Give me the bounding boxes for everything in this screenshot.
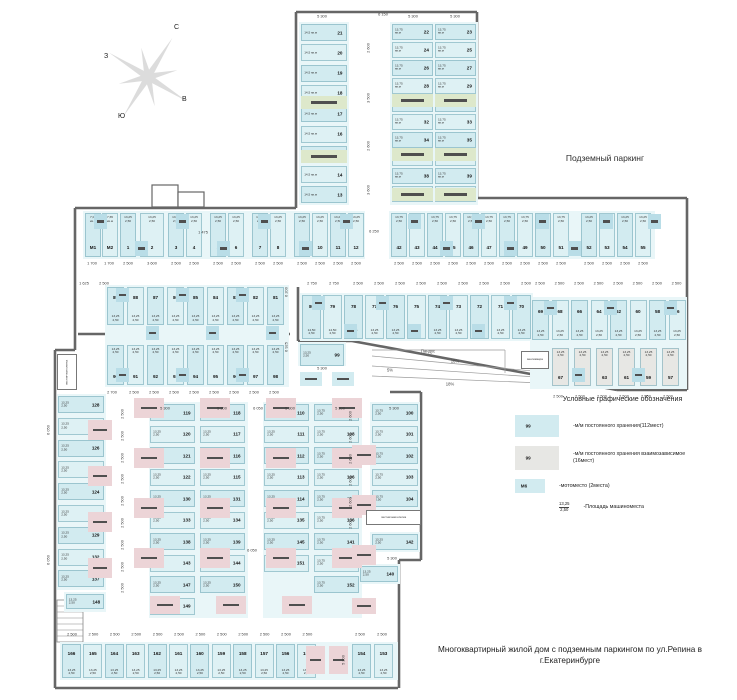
stall-number: 124	[92, 489, 100, 494]
parking-stall: 2213,75кв.м	[392, 24, 433, 40]
stall-area-label: 13,752,50	[375, 452, 383, 459]
stall-area-line: 2,50	[395, 220, 403, 223]
stall-area-label: 13,752,50	[521, 216, 529, 223]
legend-item-text: -м/м постоянного хранения(112мест)	[573, 423, 703, 430]
column-marker	[306, 646, 325, 674]
column-marker-bar	[141, 557, 158, 560]
stall-area-label: 14,5 кв.м	[304, 51, 317, 54]
dimension-label: 2 500	[638, 261, 648, 266]
parking-stall: 2014,5 кв.м	[301, 44, 347, 61]
legend-item-text: -м/м постоянного хранения взаимозависимо…	[573, 451, 703, 464]
parking-stall: 2813,75кв.м	[392, 78, 433, 94]
stall-area-label: 13,252,50	[192, 348, 200, 355]
dimension-label: 2 500	[209, 390, 219, 395]
stall-area-line: 2,50	[579, 354, 587, 357]
stall-area-label: 13,252,50	[61, 554, 69, 561]
stall-area-line: 2,50	[272, 319, 280, 322]
stall-number: 12	[353, 245, 358, 250]
stall-area-label: 13,252,50	[203, 431, 211, 438]
stall-number: 138	[183, 539, 191, 544]
stall-number: 17	[337, 111, 342, 116]
column-marker-bar	[539, 220, 546, 223]
column-marker-bar	[357, 554, 370, 557]
stall-area-line: 2,50	[239, 672, 247, 675]
dimension-label: 2 500	[89, 632, 99, 637]
stall-area-line: 2,50	[645, 354, 653, 357]
parking-stall: 3313,75кв.м	[435, 114, 476, 130]
dimension-label: 5 300	[387, 556, 397, 561]
stall-area-label: 13,252,50	[639, 216, 647, 223]
dimension-label: 2 500	[171, 261, 181, 266]
dimension-label: 2 600	[366, 43, 371, 53]
stall-number: 97	[253, 374, 258, 379]
parking-stall: 11513,252,50	[200, 469, 245, 486]
stall-area-line: 2,50	[212, 351, 220, 354]
column-marker	[134, 548, 164, 568]
stall-area-label: 13,252,50	[61, 466, 69, 473]
stall-number: 135	[297, 518, 305, 523]
stall-area-label: 13,252,50	[579, 351, 587, 358]
stall-number: 64	[596, 309, 601, 314]
stall-area-line: 2,50	[61, 492, 69, 495]
dimension-label: 2 500	[67, 632, 77, 637]
stall-number: 120	[183, 432, 191, 437]
parking-stall: 8413,252,50	[207, 287, 224, 325]
legend-swatch-code: 99	[526, 424, 531, 429]
stall-number: 118	[233, 410, 240, 415]
parking-stall: 15813,252,50	[233, 644, 252, 678]
parking-stall: 15913,252,50	[212, 644, 231, 678]
stall-area-label: 13,252,50	[203, 474, 211, 481]
stall-area-line: 2,50	[192, 351, 200, 354]
stall-area-line: 2,50	[153, 542, 161, 545]
stall-area-label: 13,252,50	[434, 329, 442, 336]
stall-area-label: 14,5 кв.м	[304, 92, 317, 95]
stall-number: 91	[133, 374, 138, 379]
stall-number: 115	[233, 475, 240, 480]
stall-number: 44	[432, 245, 437, 250]
stall-area-line: 2,50	[316, 220, 324, 223]
dimension-label: 2 500	[355, 632, 365, 637]
column-marker-bar	[141, 507, 158, 510]
stall-area-line: 2,50	[485, 220, 493, 223]
column-marker	[146, 326, 159, 340]
dimension-label: 2 500	[374, 281, 384, 286]
dimension-label: 2 500	[196, 632, 206, 637]
stall-number: 60	[635, 309, 640, 314]
dimension-label: 2 500	[99, 281, 109, 286]
column-marker	[88, 466, 112, 486]
stall-area-label: 13,252,50	[124, 216, 132, 223]
stall-area-line: 2,50	[153, 477, 161, 480]
stall-area-label: 14,5 кв.м	[304, 193, 317, 196]
column-marker	[236, 368, 249, 382]
dimension-label: 2 500	[149, 390, 159, 395]
dimension-label: 2 500	[535, 281, 545, 286]
column-marker-bar	[571, 247, 578, 250]
stall-number: 63	[602, 375, 607, 380]
stall-area-line: 2,50	[89, 672, 97, 675]
stall-area-label: 13,252,50	[61, 423, 69, 430]
stall-area-label: 7,65кв.м	[107, 216, 113, 223]
column-marker-bar	[401, 193, 424, 196]
stall-area-label: 13,252,50	[196, 669, 204, 676]
stall-area-line: 2,50	[132, 351, 140, 354]
parking-stall: 2913,75кв.м	[435, 78, 476, 94]
stall-number: 113	[297, 475, 304, 480]
stall-area-line: 2,50	[449, 220, 457, 223]
stall-area-label: 13,252,50	[601, 351, 609, 358]
column-marker	[572, 368, 585, 382]
stall-number: 59	[646, 375, 651, 380]
column-marker-bar	[667, 307, 674, 310]
stall-area-line: 2,50	[252, 319, 260, 322]
dimension-label: 2 500	[553, 394, 563, 399]
column-marker	[352, 545, 376, 565]
dimension-label: 2 500	[213, 261, 223, 266]
parking-stall: 7914,502,50	[323, 295, 342, 339]
stall-area-label: 13,752,50	[431, 216, 439, 223]
legend-swatch-code: 99	[526, 456, 531, 461]
stall-area-label: 13,752,50	[317, 538, 325, 545]
dimension-label: 2 500	[412, 261, 422, 266]
parking-stall: 6013,252,50	[630, 300, 647, 340]
dimension-label: 2 500	[120, 518, 125, 528]
stall-number: 34	[424, 138, 429, 143]
stall-area-line: 2,50	[623, 354, 631, 357]
stall-area-label: 14,5 кв.м	[304, 31, 317, 34]
column-marker-bar	[302, 247, 309, 250]
column-marker	[504, 296, 517, 310]
stall-area-line: 2,50	[557, 220, 565, 223]
parking-stall: 613,252,50	[228, 213, 244, 257]
stall-area-label: 13,252,50	[232, 315, 240, 322]
stall-area-label: 13,252,50	[595, 330, 603, 337]
stall-area-line: 2,50	[639, 220, 647, 223]
dimension-label: 2 500	[120, 431, 125, 441]
stall-area-label: 13,75кв.м	[438, 47, 446, 54]
stall-area-line: 2,50	[153, 585, 161, 588]
dimension-label: 3 600	[147, 261, 157, 266]
column-marker-bar	[315, 302, 322, 305]
parking-stall: 5113,752,50	[553, 213, 569, 257]
column-marker-bar	[273, 457, 290, 460]
dimension-label: 2 500	[521, 281, 531, 286]
parking-stall: 9513,252,50	[207, 345, 224, 385]
stall-area-line: 14,5 кв.м	[304, 112, 317, 115]
dimension-label: 2 500	[123, 261, 133, 266]
column-marker	[408, 214, 421, 229]
column-marker-bar	[141, 407, 158, 410]
stall-area-line: 2,50	[190, 220, 198, 223]
dimension-label: 5 300	[408, 14, 418, 19]
stall-area-line: 2,50	[196, 672, 204, 675]
stall-area-line: 2,50	[317, 413, 325, 416]
column-marker	[206, 326, 219, 340]
stall-area-label: 13,252,50	[272, 348, 280, 355]
column-marker	[266, 498, 296, 518]
stall-area-line: 2,50	[521, 220, 529, 223]
stall-area-label: 13,252,50	[153, 669, 161, 676]
stall-area-label: 13,252,50	[190, 216, 198, 223]
column-marker	[116, 368, 129, 382]
parking-stall: 15213,752,50	[314, 576, 359, 593]
stall-area-line: кв.м	[395, 86, 403, 89]
stall-number: 87	[153, 295, 158, 300]
stall-area-label: 13,252,50	[352, 216, 360, 223]
stall-number: 153	[380, 651, 388, 656]
stall-area-label: 13,252,50	[557, 351, 565, 358]
stall-number: 157	[260, 651, 268, 656]
stall-area-line: кв.м	[438, 140, 446, 143]
stall-area-line: 2,50	[203, 585, 211, 588]
stall-number: 85	[193, 295, 198, 300]
legend-item: 99-м/м постоянного хранения(112мест)	[515, 415, 730, 437]
stall-area-line: 2,50	[69, 602, 77, 605]
stall-area-line: 2,50	[68, 672, 76, 675]
column-marker-bar	[357, 454, 370, 457]
dimension-label: 2 500	[597, 394, 607, 399]
stall-area-line: 2,50	[214, 220, 222, 223]
column-marker	[435, 148, 476, 161]
parking-stall: 3413,75кв.м	[392, 132, 433, 148]
stall-area-line: 2,50	[153, 520, 161, 523]
stall-number: 11	[336, 245, 341, 250]
dimension-label: 2 500	[120, 584, 125, 594]
stall-area-line: 2,50	[380, 672, 388, 675]
stall-number: 16	[337, 132, 342, 137]
stall-number: 163	[132, 651, 140, 656]
column-marker	[200, 498, 230, 518]
compass-star-arm	[109, 53, 150, 80]
stall-number: 128	[92, 402, 100, 407]
stall-area-line: 2,50	[61, 448, 69, 451]
stall-number: 51	[558, 245, 563, 250]
parking-stall: 6613,252,50	[571, 300, 588, 340]
stall-number: 32	[424, 120, 429, 125]
column-marker-bar	[635, 374, 642, 377]
column-marker	[435, 188, 476, 201]
column-marker-bar	[443, 247, 450, 250]
stall-area-label: 13,252,50	[61, 401, 69, 408]
dimension-label: 2 500	[260, 632, 270, 637]
stall-area-label: 14,502,50	[308, 329, 316, 336]
dimension-label: 5 300	[450, 14, 460, 19]
stall-area-label: 13,252,50	[152, 315, 160, 322]
stall-number: 43	[414, 245, 419, 250]
stall-area-line: 2,50	[615, 334, 623, 337]
parking-stall: 2114,5 кв.м	[301, 24, 347, 41]
stall-area-line: 2,50	[152, 319, 160, 322]
stall-area-line: 2,50	[172, 351, 180, 354]
stall-area-line: 2,50	[317, 499, 325, 502]
stall-number: 7	[259, 245, 262, 250]
compass-letter-n: С	[174, 24, 179, 31]
stall-area-line: 2,50	[267, 477, 275, 480]
stall-number: 21	[337, 30, 342, 35]
parking-stall: 16013,252,50	[190, 644, 209, 678]
stall-number: 84	[213, 295, 218, 300]
stall-number: 121	[183, 453, 191, 458]
stall-area-label: 13,752,50	[557, 216, 565, 223]
stall-area-label: 13,252,50	[232, 216, 240, 223]
stall-area-label: 13,75кв.м	[395, 137, 403, 144]
column-marker-bar	[575, 374, 582, 377]
stall-number: 1	[127, 245, 130, 250]
dimension-label: 2 500	[416, 281, 426, 286]
stall-number: 134	[233, 518, 241, 523]
column-marker	[536, 214, 549, 229]
stall-area-label: 13,75кв.м	[438, 83, 446, 90]
column-marker	[88, 558, 112, 578]
stall-number: 140	[386, 572, 394, 577]
stall-area-line: 2,50	[172, 319, 180, 322]
stall-area-line: 2,50	[267, 542, 275, 545]
dimension-label: 5 300	[317, 366, 327, 371]
parking-stall: 12813,252,50	[58, 396, 104, 413]
dimension-label: 5 300	[389, 406, 399, 411]
stall-area-label: 13,752,50	[317, 517, 325, 524]
stall-number: 147	[183, 582, 191, 587]
parking-stall: 15013,252,50	[200, 576, 245, 593]
parking-stall: 12213,252,50	[150, 469, 195, 486]
stall-area-label: 14,5 кв.м	[304, 132, 317, 135]
shaft-box	[152, 185, 178, 207]
dimension-label: 2 500	[448, 261, 458, 266]
stall-area-line: 2,50	[61, 405, 69, 408]
column-marker-bar	[507, 302, 514, 305]
stall-area-line: кв.м	[438, 68, 446, 71]
stall-number: 76	[393, 304, 398, 309]
dimension-label: 2 500	[584, 261, 594, 266]
parking-stall: 2713,75кв.м	[435, 60, 476, 76]
legend-swatch-code: М6	[521, 484, 527, 489]
stall-area-line: 2,50	[267, 434, 275, 437]
stall-number: 28	[424, 84, 429, 89]
column-marker	[266, 326, 279, 340]
stall-number: 88	[133, 295, 138, 300]
stall-number: 82	[253, 295, 258, 300]
column-marker-bar	[239, 294, 246, 297]
dimension-label: 1 475	[198, 230, 208, 235]
stall-number: 68	[557, 309, 562, 314]
stall-number: 13	[337, 192, 342, 197]
parking-stall: 1614,5 кв.м	[301, 126, 347, 143]
dimension-label: 2 500	[131, 632, 141, 637]
column-marker	[266, 548, 296, 568]
dimension-label: 2 500	[120, 562, 125, 572]
stall-area-label: 14,502,50	[329, 329, 337, 336]
compass-letter-w: З	[104, 53, 108, 60]
dimension-label: 2 500	[351, 261, 361, 266]
stall-area-label: 13,752,50	[375, 431, 383, 438]
stall-area-label: 13,252,50	[298, 216, 306, 223]
floor-plan-canvas: Подземный паркинг Условные графические о…	[0, 0, 737, 700]
stall-area-line: 2,50	[232, 220, 240, 223]
stall-number: 46	[468, 245, 473, 250]
parking-stall: 3913,75кв.м	[435, 168, 476, 184]
stall-area-line: 2,50	[61, 557, 69, 560]
parking-stall: 10413,752,50	[372, 490, 418, 507]
parking-stall: 3813,75кв.м	[392, 168, 433, 184]
compass-star-arm	[124, 75, 151, 116]
column-marker-bar	[138, 247, 145, 250]
parking-stall: 16613,252,50	[62, 644, 81, 678]
parking-stall: 16413,252,50	[105, 644, 124, 678]
column-marker-bar	[603, 220, 610, 223]
dimension-label: 2 500	[520, 261, 530, 266]
parking-stall: 9913,252,50	[300, 344, 344, 366]
parking-stall: 2313,75кв.м	[435, 24, 476, 40]
column-marker	[88, 512, 112, 532]
parking-stall: 9113,252,50	[127, 345, 144, 385]
parking-stall: 5713,252,50	[662, 348, 679, 386]
stall-area-label: 13,75кв.м	[395, 119, 403, 126]
stall-area-label: 13,252,50	[392, 329, 400, 336]
parking-stall: 16213,252,50	[148, 644, 167, 678]
stall-number: 131	[233, 496, 241, 501]
column-marker	[392, 148, 433, 161]
stall-number: 112	[297, 453, 304, 458]
stall-area-line: 2,50	[272, 351, 280, 354]
column-marker-bar	[119, 294, 126, 297]
stall-area-line: кв.м	[438, 32, 446, 35]
stall-area-label: 13,75кв.м	[395, 65, 403, 72]
column-marker	[340, 214, 353, 229]
dimension-label: 2 500	[120, 496, 125, 506]
stall-area-label: 13,752,50	[317, 474, 325, 481]
column-marker-bar	[379, 302, 386, 305]
stall-area-label: 13,252,50	[212, 348, 220, 355]
stall-number: 129	[92, 533, 100, 538]
column-marker-bar	[305, 378, 317, 381]
stall-area-label: 13,252,50	[537, 330, 545, 337]
stall-number: 79	[330, 304, 335, 309]
dimension-label: 2 500	[437, 281, 447, 286]
compass-star-arm	[145, 76, 155, 106]
stall-area-line: 2,50	[556, 334, 564, 337]
stall-area-line: кв.м	[395, 122, 403, 125]
stall-area-label: 14,5 кв.м	[304, 112, 317, 115]
stall-number: 143	[183, 561, 191, 566]
stall-area-line: кв.м	[107, 220, 113, 223]
compass-star-arm	[119, 74, 149, 84]
parking-stall: 10313,752,50	[372, 469, 418, 486]
legend-item: 13,252,50-Площадь машиноместа	[515, 502, 730, 512]
stall-area-line: кв.м	[395, 32, 403, 35]
stall-area-label: 13,252,50	[667, 351, 675, 358]
dimension-label: 6 150	[378, 12, 388, 17]
parking-stall: 11713,252,50	[200, 426, 245, 443]
column-marker	[408, 324, 421, 338]
stall-number: 102	[406, 453, 414, 458]
parking-stall: 16313,252,50	[126, 644, 145, 678]
dimension-label: 5 300	[217, 406, 227, 411]
stall-area-line: 2,50	[212, 319, 220, 322]
stall-area-label: 13,75кв.м	[438, 29, 446, 36]
dimension-label: 2 500	[575, 394, 585, 399]
stall-number: 33	[467, 120, 472, 125]
stall-area-line: 2,50	[217, 672, 225, 675]
column-marker-bar	[141, 457, 158, 460]
parking-stall: 2613,75кв.м	[392, 60, 433, 76]
stall-number: 47	[486, 245, 491, 250]
dimension-label: 2 500	[273, 261, 283, 266]
legend-swatch: 99	[515, 446, 559, 470]
column-marker	[94, 214, 107, 229]
stall-number: М1	[90, 245, 96, 250]
parking-stall: 6713,252,50	[552, 348, 569, 386]
